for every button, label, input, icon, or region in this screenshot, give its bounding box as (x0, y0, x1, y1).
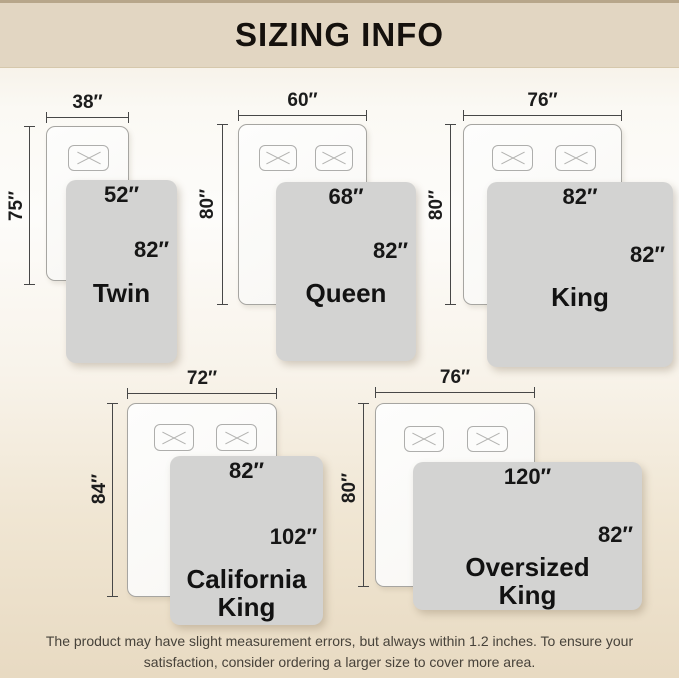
queen-name-label: Queen (276, 280, 416, 308)
oversized-king-blanket-width-label: 120″ (413, 464, 642, 490)
pillow-x-icon (315, 145, 353, 171)
pillow-x-icon (404, 426, 444, 452)
twin-blanket: 52″ 82″ Twin (66, 180, 177, 363)
pillow-x-icon (154, 424, 194, 451)
king-name-label: King (487, 284, 673, 312)
california-king-width-measure-line (127, 393, 277, 394)
queen-width-measure-line (238, 115, 367, 116)
california-king-name-label: California King (172, 566, 322, 621)
footer-note-line2: satisfaction, consider ordering a larger… (0, 652, 679, 673)
california-king-blanket-width-label: 82″ (170, 458, 323, 484)
king-width-measure-line (463, 115, 622, 116)
pillow-x-icon (259, 145, 297, 171)
pillow-x-icon (68, 145, 109, 171)
oversized-king-name-label: Oversized King (445, 554, 610, 609)
king-length-measure-line (450, 124, 451, 305)
twin-blanket-width-label: 52″ (66, 182, 177, 208)
queen-blanket-width-label: 68″ (276, 184, 416, 210)
california-king-blanket: 82″ 102″ California King (170, 456, 323, 625)
king-blanket-width-label: 82″ (487, 184, 673, 210)
pillow-x-icon (467, 426, 508, 452)
oversized-king-blanket: 120″ 82″ Oversized King (413, 462, 642, 610)
pillow-x-icon (216, 424, 257, 451)
twin-name-label: Twin (66, 280, 177, 308)
twin-mattress-width-label: 38″ (46, 92, 129, 114)
pillow-x-icon (492, 145, 533, 171)
california-king-blanket-length-label: 102″ (270, 524, 317, 550)
california-king-mattress-width-label: 72″ (127, 368, 277, 390)
queen-blanket: 68″ 82″ Queen (276, 182, 416, 361)
queen-mattress-length-label: 80″ (197, 189, 219, 219)
twin-length-measure-line (29, 126, 30, 285)
twin-width-measure-line (46, 117, 129, 118)
pillow-x-icon (555, 145, 596, 171)
queen-length-measure-line (222, 124, 223, 305)
sizing-info-page: SIZING INFO 38″ 75″ 52″ 82″ Twin 60″ 80″… (0, 0, 679, 678)
oversized-king-length-measure-line (363, 403, 364, 587)
oversized-king-mattress-length-label: 80″ (339, 473, 361, 503)
twin-blanket-length-label: 82″ (134, 237, 169, 263)
twin-mattress-length-label: 75″ (6, 191, 28, 221)
california-king-length-measure-line (112, 403, 113, 597)
king-blanket-length-label: 82″ (630, 242, 665, 268)
oversized-king-blanket-length-label: 82″ (598, 522, 633, 548)
king-mattress-width-label: 76″ (463, 90, 622, 112)
footer-note: The product may have slight measurement … (0, 631, 679, 673)
oversized-king-width-measure-line (375, 392, 535, 393)
footer-note-line1: The product may have slight measurement … (0, 631, 679, 652)
queen-blanket-length-label: 82″ (373, 238, 408, 264)
oversized-king-mattress-width-label: 76″ (375, 367, 535, 389)
header: SIZING INFO (0, 0, 679, 68)
california-king-mattress-length-label: 84″ (89, 474, 111, 504)
king-blanket: 82″ 82″ King (487, 182, 673, 367)
king-mattress-length-label: 80″ (426, 190, 448, 220)
page-title: SIZING INFO (235, 16, 444, 54)
queen-mattress-width-label: 60″ (238, 90, 367, 112)
